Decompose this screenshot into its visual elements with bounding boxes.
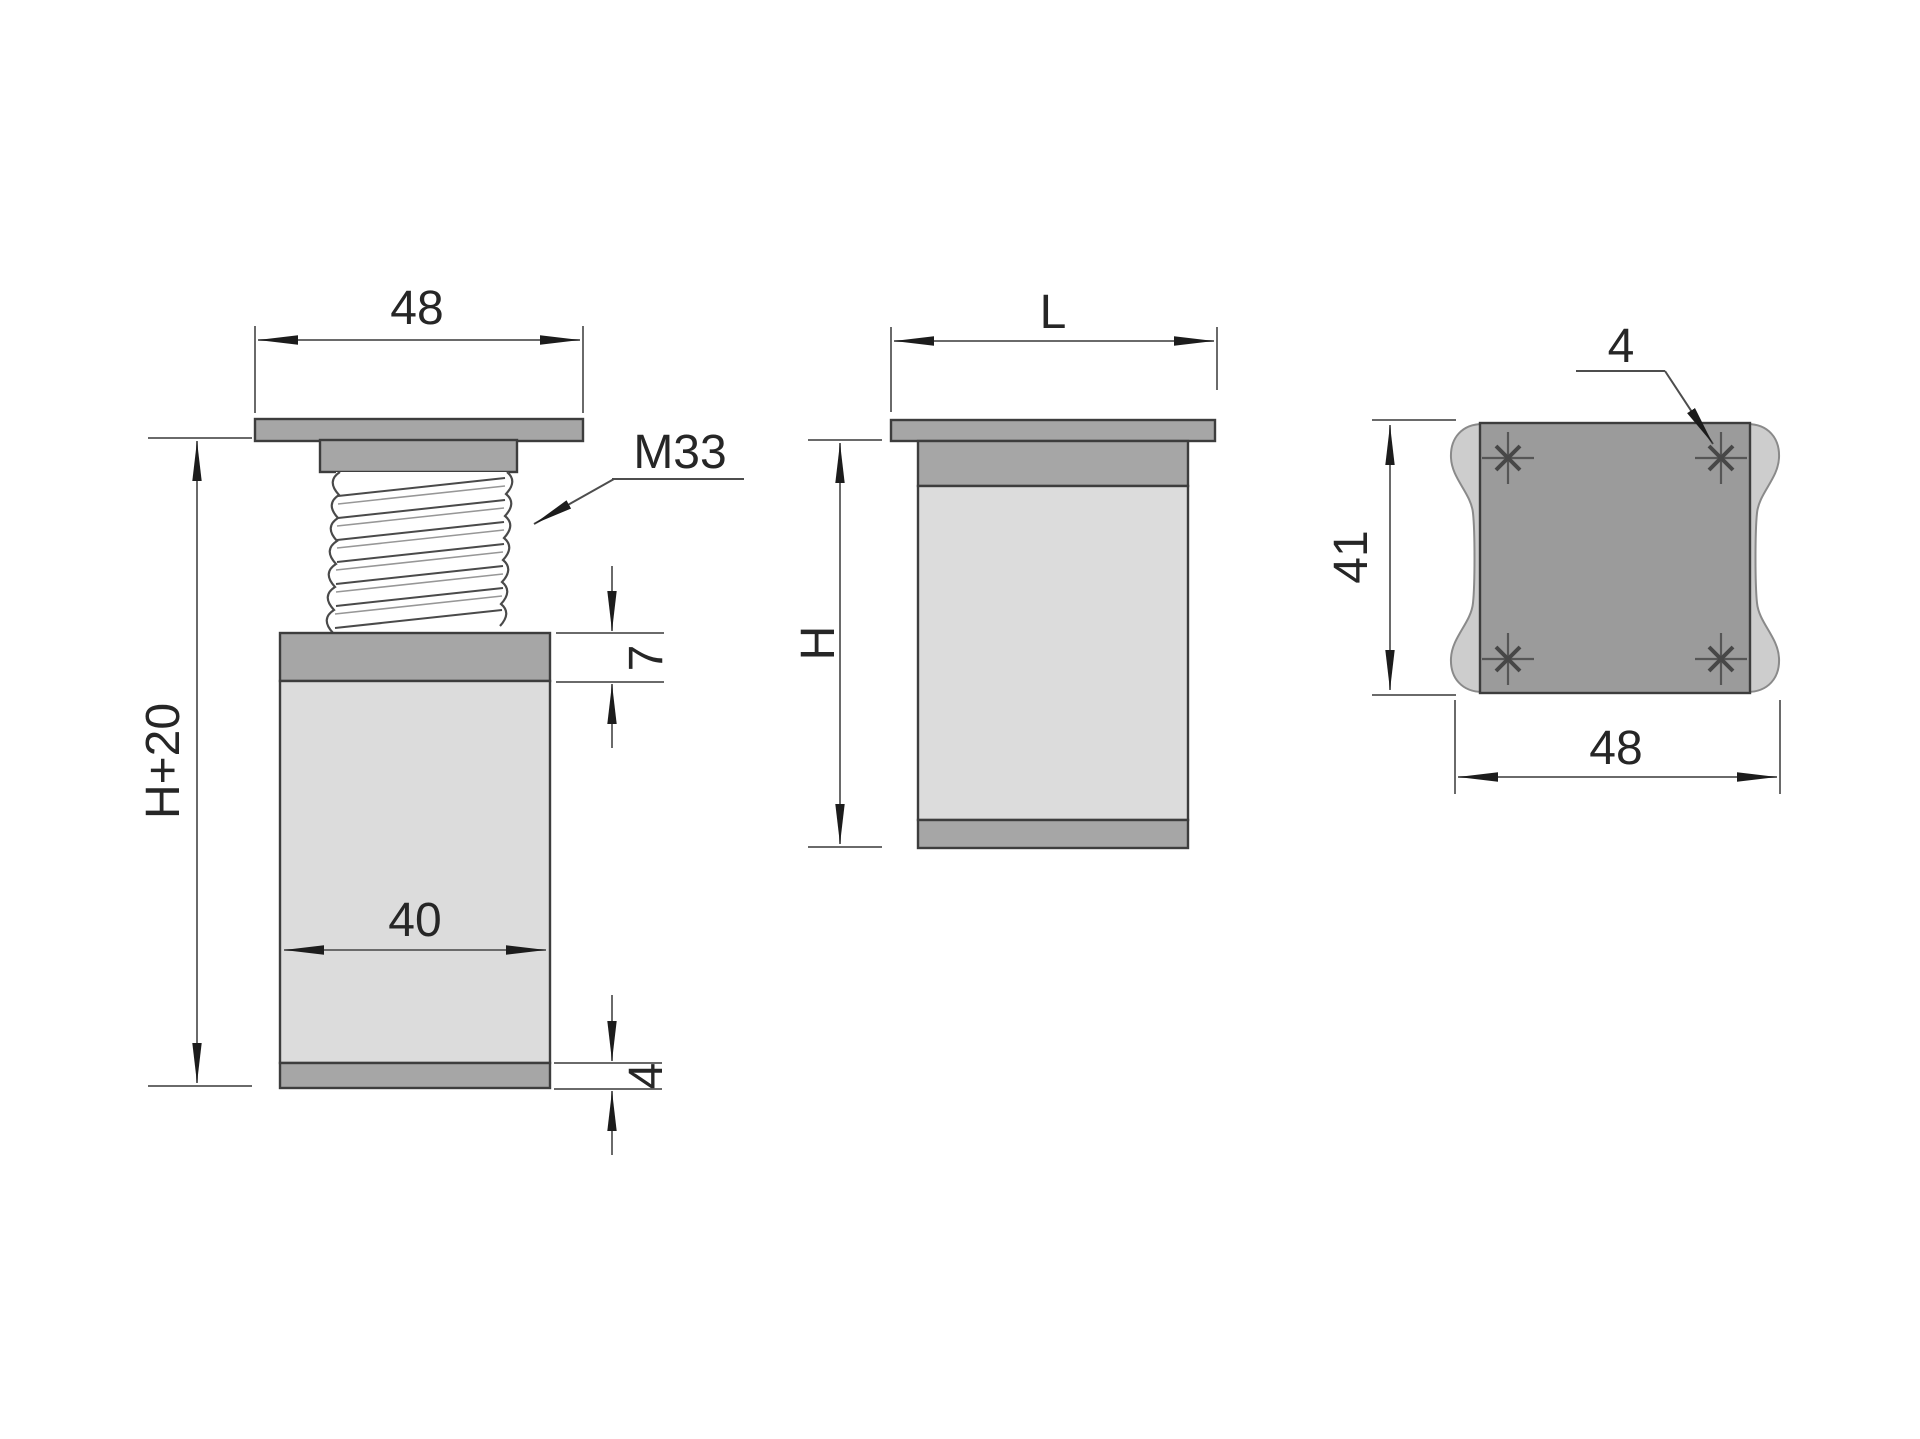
dim-plate-depth-label: 41	[1325, 530, 1378, 583]
mounting-plate	[1480, 423, 1750, 693]
side-collar	[918, 441, 1188, 486]
technical-drawing-canvas: 48 M33	[0, 0, 1920, 1439]
dim-body-width-label: 40	[388, 894, 441, 947]
dim-plate-width-label: 48	[1589, 722, 1642, 775]
front-view: 48 M33	[137, 282, 744, 1155]
front-foot-band	[280, 1063, 550, 1088]
screw-hole-count-label: 4	[1608, 320, 1635, 373]
front-flange	[255, 419, 583, 441]
dim-collar-height-label: 7	[620, 645, 673, 672]
dim-height-label: H	[792, 626, 845, 661]
side-body	[918, 486, 1188, 820]
dim-top-width-label: 48	[390, 282, 443, 335]
drawing-page: 48 M33	[0, 0, 1920, 1439]
side-view: L H	[792, 286, 1217, 848]
thread-leader-line	[534, 479, 614, 524]
side-foot-band	[918, 820, 1188, 848]
top-view: 4 41 48	[1325, 320, 1780, 794]
front-body	[280, 681, 550, 1063]
thread-size-label: M33	[633, 426, 726, 479]
dim-length-label: L	[1040, 286, 1067, 339]
front-lower-collar	[280, 633, 550, 681]
front-upper-collar	[320, 440, 517, 472]
side-flange	[891, 420, 1215, 441]
dim-foot-height-label: 4	[620, 1063, 673, 1090]
thread-stud	[327, 472, 513, 633]
dim-overall-height-label: H+20	[137, 703, 190, 819]
